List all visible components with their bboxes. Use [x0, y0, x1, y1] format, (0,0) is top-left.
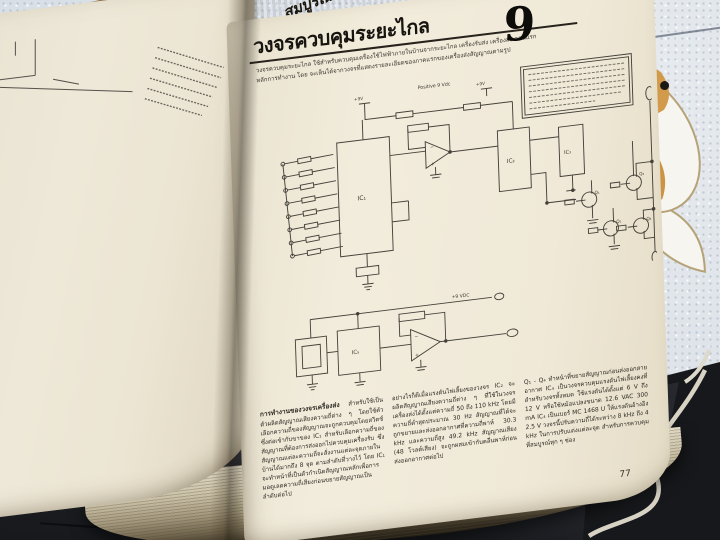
text-column-1: การทำงานของวงจรเครื่องส่ง สำหรับใช้เป็นต… [260, 396, 386, 502]
page-number: 77 [619, 469, 631, 480]
left-page-circuit-fragment [0, 26, 142, 146]
q1-label: Q₁ [595, 190, 601, 197]
text-column-2: อย่างไรก็ดีเมื่อแรงดันไฟเลี้ยงของวงจร IC… [392, 379, 518, 485]
photo-scene: สมบูรณ์ ชโยเก [0, 0, 720, 540]
open-book: วงจรควบคุมระยะไกล 9 วงจรควบคุมระยะไกล ใช… [0, 0, 720, 540]
svg-text:+: + [415, 352, 419, 358]
q2-label: Q₂ [616, 218, 622, 225]
svg-text:−: − [430, 145, 434, 150]
q3-label: Q₃ [639, 171, 645, 178]
ic1-label: IC₁ [357, 195, 366, 203]
ic5-label: IC₅ [352, 350, 360, 357]
chapter-number: 9 [503, 0, 536, 48]
svg-text:+: + [431, 161, 435, 167]
power-label-2: +9V [476, 81, 485, 88]
ic3-label: IC₃ [564, 149, 571, 156]
rail-label: Positive 9 Vdc [418, 81, 451, 91]
selector-switches [281, 152, 343, 259]
note-box [521, 54, 633, 119]
transistor-q4 [616, 209, 655, 242]
ic2-label: IC₂ [507, 158, 515, 165]
main-circuit-diagram: Positive 9 Vdc +9V +9V IC₁ IC₂ IC₃ Q₁ Q₂… [275, 47, 658, 306]
transistor-q3 [610, 162, 653, 203]
small-power-label: +9 VDC [451, 293, 469, 301]
power-label-1: +9V [354, 96, 363, 103]
output-connector [507, 329, 518, 338]
ic3-chip [558, 124, 584, 176]
transistor-q1 [564, 180, 598, 227]
opamp [425, 139, 450, 169]
output-connector-top [495, 293, 504, 301]
right-page: วงจรควบคุมระยะไกล 9 วงจรควบคุมระยะไกล ใช… [226, 0, 671, 540]
q4-label: Q₄ [646, 216, 652, 223]
crystal-box [295, 336, 327, 377]
svg-text:−: − [414, 335, 418, 340]
antenna-connector [646, 86, 654, 100]
text-column-3: Q₁ - Q₄ ทำหน้าที่ขยายสัญญาณก่อนส่งออกสาย… [524, 363, 650, 469]
left-page [0, 0, 255, 531]
